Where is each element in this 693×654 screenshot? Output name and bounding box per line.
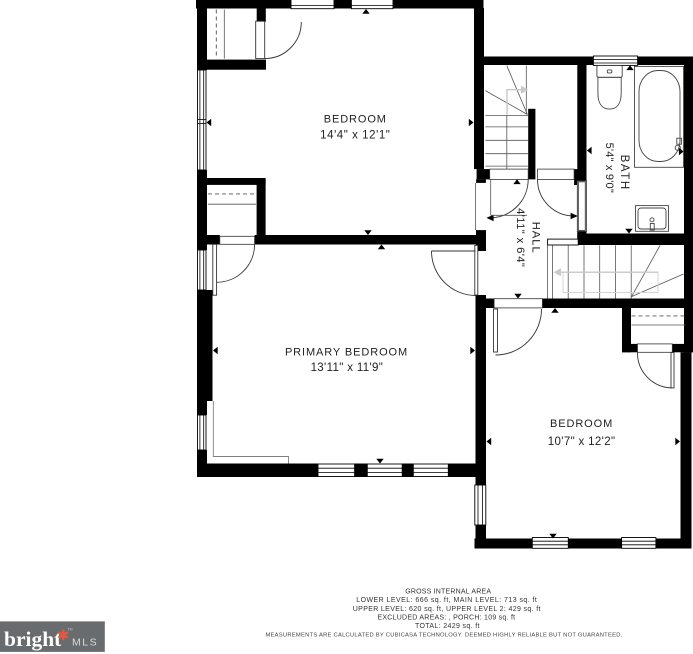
svg-text:10'7" x 12'2": 10'7" x 12'2"	[548, 436, 616, 448]
svg-text:UPPER LEVEL: 620 sq. ft, UPPER: UPPER LEVEL: 620 sq. ft, UPPER LEVEL 2: …	[353, 606, 541, 613]
svg-text:PRIMARY BEDROOM: PRIMARY BEDROOM	[285, 347, 408, 359]
svg-text:BATH: BATH	[618, 155, 630, 191]
svg-text:EXCLUDED AREAS: , PORCH: 109 s: EXCLUDED AREAS: , PORCH: 109 sq. ft	[377, 615, 515, 622]
svg-text:GROSS INTERNAL AREA: GROSS INTERNAL AREA	[405, 588, 491, 595]
svg-text:MEASUREMENTS ARE CALCULATED BY: MEASUREMENTS ARE CALCULATED BY CUBICASA …	[265, 632, 622, 638]
svg-text:HALL: HALL	[530, 222, 542, 254]
svg-text:13'11" x 11'9": 13'11" x 11'9"	[311, 362, 384, 374]
svg-text:5'4" x 9'0": 5'4" x 9'0"	[603, 143, 615, 193]
svg-text:LOWER LEVEL: 666 sq. ft, MAIN: LOWER LEVEL: 666 sq. ft, MAIN LEVEL: 713…	[356, 597, 537, 604]
svg-text:14'4" x 12'1": 14'4" x 12'1"	[320, 130, 390, 142]
svg-text:BEDROOM: BEDROOM	[324, 114, 387, 126]
svg-text:BEDROOM: BEDROOM	[550, 418, 613, 430]
svg-text:4'11" x 6'4": 4'11" x 6'4"	[514, 208, 526, 267]
svg-text:TM: TM	[68, 628, 73, 632]
svg-text:TOTAL: 2429 sq. ft: TOTAL: 2429 sq. ft	[415, 623, 480, 630]
svg-text:bright: bright	[4, 627, 62, 651]
svg-text:MLS: MLS	[72, 636, 98, 648]
